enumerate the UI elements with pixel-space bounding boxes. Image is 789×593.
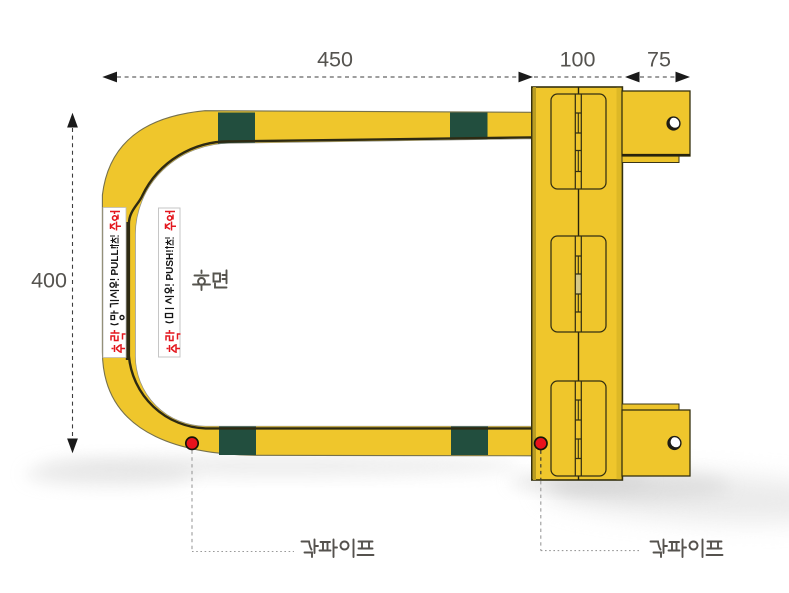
svg-text:400: 400 [31,269,67,293]
svg-text:450: 450 [317,48,353,72]
svg-text:100: 100 [560,48,596,72]
svg-text:75: 75 [647,48,671,72]
svg-text:PULL!: PULL! [110,246,121,275]
svg-text:PUSH!: PUSH! [165,249,176,280]
